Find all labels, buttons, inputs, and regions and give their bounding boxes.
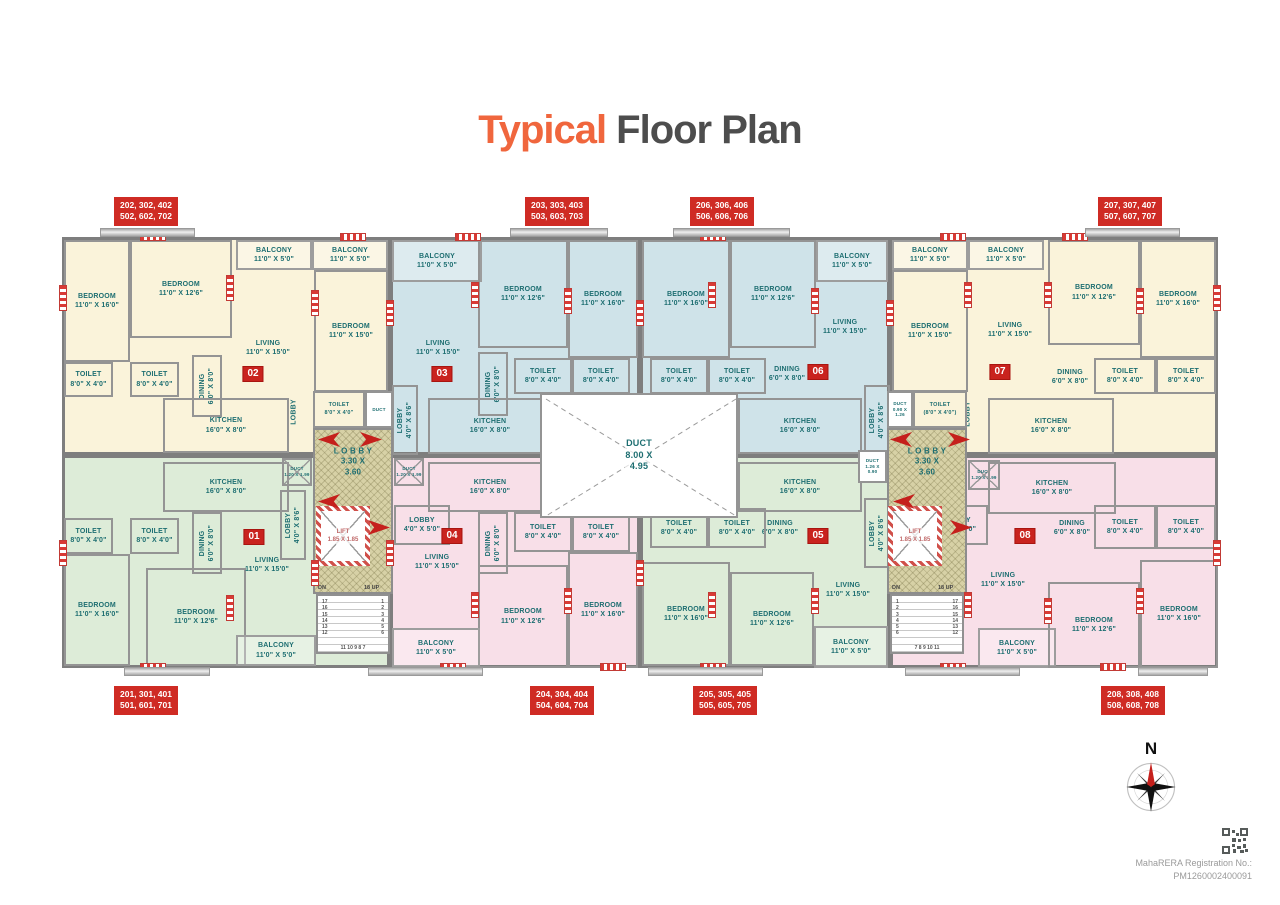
window-marker (564, 588, 572, 614)
unit-number-label: 201, 301, 401 501, 601, 701 (114, 686, 178, 715)
window-marker (886, 300, 894, 326)
center-duct-label: DUCT 8.00 X 4.95 (625, 438, 652, 473)
staircase: 1 2 3 4 5 617 16 15 14 13 127 8 9 10 11 (890, 594, 964, 654)
unit-number-label: 203, 303, 403 503, 603, 703 (525, 197, 589, 226)
room-label: BEDROOM 11'0" X 16'0" (581, 290, 625, 308)
balcony-railing (1085, 228, 1180, 237)
room-kitchen: KITCHEN 16'0" X 8'0" (163, 462, 289, 512)
room-label: TOILET 8'0" X 4'0" (719, 519, 755, 537)
unit-badge-08: 08 (1014, 528, 1035, 544)
window-marker (964, 592, 972, 618)
room-bedroom: BEDROOM 11'0" X 12'6" (478, 565, 568, 668)
window-marker (386, 540, 394, 566)
room-balcony: BALCONY 11'0" X 5'0" (816, 240, 888, 282)
room-label: DINING 6'0" X 8'0" (484, 525, 502, 561)
room-label: BEDROOM 11'0" X 16'0" (75, 292, 119, 310)
room-label-living: LIVING 11'0" X 15'0" (981, 571, 1025, 589)
unit-badge-02: 02 (242, 366, 263, 382)
room-balcony: BALCONY 11'0" X 5'0" (392, 240, 482, 282)
window-marker (708, 282, 716, 308)
window-marker (964, 282, 972, 308)
window-marker (1100, 663, 1126, 671)
balcony-railing (1138, 667, 1208, 676)
window-marker (1044, 598, 1052, 624)
core-duct: DUCT 0.90 X 1.26 (887, 391, 913, 428)
room-toilet: TOILET 8'0" X 4'0" (130, 362, 179, 397)
window-marker (311, 560, 319, 586)
room-label: BEDROOM 11'0" X 12'6" (174, 608, 218, 626)
unit-badge-03: 03 (431, 366, 452, 382)
window-marker (564, 288, 572, 314)
unit-badge-01: 01 (243, 529, 264, 545)
window-marker (811, 588, 819, 614)
room-label-living: LIVING 11'0" X 15'0" (246, 339, 290, 357)
window-marker (1044, 282, 1052, 308)
room-bedroom: BEDROOM 11'0" X 16'0" (642, 562, 730, 666)
room-label: BALCONY 11'0" X 5'0" (417, 252, 457, 270)
center-duct: DUCT 8.00 X 4.95 (540, 393, 738, 518)
room-label: KITCHEN 16'0" X 8'0" (470, 478, 510, 496)
room-label: BALCONY 11'0" X 5'0" (254, 246, 294, 264)
room-label-living: LIVING 11'0" X 15'0" (826, 581, 870, 599)
stair-numbers-left: 1 2 3 4 5 6 (896, 599, 899, 637)
room-toilet: TOILET 8'0" X 4'0" (650, 358, 708, 394)
room-lobby: LOBBY 4'0" X 8'6" (392, 385, 418, 455)
room-label-dining: DINING 6'0" X 8'0" (762, 519, 798, 537)
room-bedroom: BEDROOM 11'0" X 12'6" (1048, 240, 1140, 345)
window-marker (811, 288, 819, 314)
room-label: TOILET 8'0" X 4'0" (583, 523, 619, 541)
room-duct: DUCT 1.20 X 1.99 (282, 458, 312, 486)
unit-number-label: 202, 302, 402 502, 602, 702 (114, 197, 178, 226)
room-label: KITCHEN 16'0" X 8'0" (206, 416, 246, 434)
room-balcony: BALCONY 11'0" X 5'0" (892, 240, 968, 270)
window-marker (471, 592, 479, 618)
window-marker (59, 540, 67, 566)
core-toilet: TOILET (8'0" X 4'0") (913, 391, 967, 428)
room-label: TOILET (8'0" X 4'0") (923, 402, 956, 416)
room-label: BEDROOM 11'0" X 16'0" (664, 605, 708, 623)
room-toilet: TOILET 8'0" X 4'0" (572, 358, 630, 394)
room-label: KITCHEN 16'0" X 8'0" (470, 417, 510, 435)
room-bedroom: BEDROOM 11'0" X 12'6" (478, 240, 568, 348)
room-label: TOILET 8'0" X 4'0" (136, 370, 172, 388)
stairs-up-label: 18 UP (938, 585, 953, 591)
unit-number-label: 204, 304, 404 504, 604, 704 (530, 686, 594, 715)
room-label: BEDROOM 11'0" X 12'6" (1072, 283, 1116, 301)
room-label-lobby: LOBBY (289, 399, 298, 425)
room-label: TOILET 8'0" X 4'0" (1168, 367, 1204, 385)
lift: LIFT 1.85 X 1.85 (888, 506, 942, 566)
lift: LIFT 1.85 X 1.85 (316, 506, 370, 566)
unit-badge-07: 07 (989, 364, 1010, 380)
room-label: BEDROOM 11'0" X 12'6" (501, 285, 545, 303)
room-label: TOILET 8'0" X 4'0" (661, 519, 697, 537)
room-bedroom: BEDROOM 11'0" X 16'0" (568, 240, 638, 358)
window-marker (226, 275, 234, 301)
room-toilet: TOILET 8'0" X 4'0" (64, 362, 113, 397)
lift-label: LIFT 1.85 X 1.85 (326, 528, 361, 545)
room-toilet: TOILET 8'0" X 4'0" (1156, 505, 1216, 549)
window-marker (940, 233, 966, 241)
window-marker (1213, 285, 1221, 311)
room-toilet: TOILET 8'0" X 4'0" (708, 358, 766, 394)
room-kitchen: KITCHEN 16'0" X 8'0" (163, 398, 289, 453)
room-label: TOILET 8'0" X 4'0" (136, 527, 172, 545)
room-toilet: TOILET 8'0" X 4'0" (1156, 358, 1216, 394)
compass-rose: N (1122, 740, 1180, 820)
room-label-living: LIVING 11'0" X 15'0" (823, 318, 867, 336)
room-toilet: TOILET 8'0" X 4'0" (130, 518, 179, 554)
window-marker (636, 560, 644, 586)
core-duct: DUCT (365, 391, 393, 428)
window-marker (1136, 288, 1144, 314)
room-label-dining: DINING 6'0" X 8'0" (1054, 519, 1090, 537)
room-label-dining: DINING 6'0" X 8'0" (1052, 368, 1088, 386)
duct-label: DUCT (372, 407, 385, 413)
room-balcony: BALCONY 11'0" X 5'0" (236, 635, 316, 666)
balcony-railing (905, 667, 1020, 676)
window-marker (600, 663, 626, 671)
room-bedroom: BEDROOM 11'0" X 16'0" (1140, 240, 1216, 358)
unit-badge-06: 06 (807, 364, 828, 380)
room-balcony: BALCONY 11'0" X 5'0" (236, 240, 312, 270)
room-label: TOILET 8'0" X 4'0" (70, 527, 106, 545)
window-marker (471, 282, 479, 308)
window-marker (455, 233, 481, 241)
window-marker (1136, 588, 1144, 614)
room-label: BEDROOM 11'0" X 16'0" (664, 290, 708, 308)
core-toilet: TOILET 8'0" X 4'0" (313, 391, 365, 428)
unit-number-label: 207, 307, 407 507, 607, 707 (1098, 197, 1162, 226)
room-label: TOILET 8'0" X 4'0" (1168, 518, 1204, 536)
unit-number-label: 208, 308, 408 508, 608, 708 (1101, 686, 1165, 715)
window-marker (636, 300, 644, 326)
room-kitchen: KITCHEN 16'0" X 8'0" (428, 398, 552, 454)
room-toilet: TOILET 8'0" X 4'0" (64, 518, 113, 554)
room-bedroom: BEDROOM 11'0" X 16'0" (568, 552, 638, 668)
stair-numbers-bottom: 7 8 9 10 11 (892, 645, 962, 651)
room-label: TOILET 8'0" X 4'0" (525, 367, 561, 385)
room-label: BEDROOM 11'0" X 15'0" (908, 322, 952, 340)
stair-numbers-right: 1 2 3 4 5 6 (381, 599, 384, 637)
room-balcony: BALCONY 11'0" X 5'0" (978, 628, 1056, 668)
room-label: TOILET 8'0" X 4'0" (70, 370, 106, 388)
unit-number-label: 205, 305, 405 505, 605, 705 (693, 686, 757, 715)
room-balcony: BALCONY 11'0" X 5'0" (814, 626, 888, 668)
room-label: BEDROOM 11'0" X 12'6" (750, 610, 794, 628)
room-label: DINING 6'0" X 8'0" (198, 525, 216, 561)
room-duct: DUCT 1.20 X 1.99 (394, 458, 424, 486)
room-label: TOILET 8'0" X 4'0" (583, 367, 619, 385)
room-label: KITCHEN 16'0" X 8'0" (780, 478, 820, 496)
room-toilet: TOILET 8'0" X 4'0" (1094, 505, 1156, 549)
stairs-dn-label: DN (318, 585, 326, 591)
rera-line2: PM1260002400091 (1135, 870, 1252, 883)
lobby-label: L O B B Y 3.30 X 3.60 (908, 446, 946, 477)
room-balcony: BALCONY 11'0" X 5'0" (312, 240, 388, 270)
room-label: TOILET 8'0" X 4'0" (719, 367, 755, 385)
room-label: BEDROOM 11'0" X 15'0" (329, 322, 373, 340)
unit-badge-04: 04 (441, 528, 462, 544)
room-label: BEDROOM 11'0" X 12'6" (159, 280, 203, 298)
room-dining: DINING 6'0" X 8'0" (192, 512, 222, 574)
room-kitchen: KITCHEN 16'0" X 8'0" (738, 398, 862, 454)
stairs-dn-label: DN (892, 585, 900, 591)
room-kitchen: KITCHEN 16'0" X 8'0" (988, 398, 1114, 454)
room-bedroom: BEDROOM 11'0" X 12'6" (730, 572, 814, 666)
unit-number-label: 206, 306, 406 506, 606, 706 (690, 197, 754, 226)
stair-numbers-left: 17 16 15 14 13 12 (322, 599, 328, 637)
room-bedroom: BEDROOM 11'0" X 16'0" (64, 554, 130, 666)
unit-badge-05: 05 (807, 528, 828, 544)
room-label: TOILET 8'0" X 4'0" (1107, 367, 1143, 385)
balcony-railing (100, 228, 195, 237)
room-bedroom: BEDROOM 11'0" X 12'6" (1048, 582, 1140, 668)
room-label: LOBBY 4'0" X 8'6" (868, 515, 886, 551)
room-label: BALCONY 11'0" X 5'0" (330, 246, 370, 264)
compass-north-label: N (1122, 740, 1180, 757)
balcony-railing (368, 667, 483, 676)
room-label-living: LIVING 11'0" X 15'0" (988, 321, 1032, 339)
window-marker (226, 595, 234, 621)
room-label: BEDROOM 11'0" X 12'6" (501, 607, 545, 625)
rera-line1: MahaRERA Registration No.: (1135, 857, 1252, 870)
room-label: TOILET 8'0" X 4'0" (1107, 518, 1143, 536)
room-label: DUCT 1.20 X 1.99 (396, 466, 421, 478)
room-label: KITCHEN 16'0" X 8'0" (1031, 417, 1071, 435)
room-bedroom: BEDROOM 11'0" X 12'6" (130, 240, 232, 338)
room-lobby: LOBBY 4'0" X 8'6" (280, 490, 306, 560)
room-label-living: LIVING 11'0" X 15'0" (416, 339, 460, 357)
room-label: BEDROOM 11'0" X 16'0" (1157, 605, 1201, 623)
rera-registration: MahaRERA Registration No.: PM12600024000… (1135, 857, 1252, 883)
balcony-railing (648, 667, 763, 676)
room-balcony: BALCONY 11'0" X 5'0" (968, 240, 1044, 270)
room-bedroom: BEDROOM 11'0" X 16'0" (64, 240, 130, 362)
room-toilet: TOILET 8'0" X 4'0" (514, 358, 572, 394)
window-marker (386, 300, 394, 326)
room-label: BEDROOM 11'0" X 12'6" (751, 285, 795, 303)
side-duct: DUCT 1.26 X 0.90 (858, 450, 887, 483)
stair-numbers-bottom: 11 10 9 8 7 (318, 645, 388, 651)
room-kitchen: KITCHEN 16'0" X 8'0" (738, 462, 862, 512)
balcony-railing (124, 667, 210, 676)
room-label: BEDROOM 11'0" X 16'0" (1156, 290, 1200, 308)
room-bedroom: BEDROOM 11'0" X 16'0" (1140, 560, 1218, 668)
lobby-label: L O B B Y 3.30 X 3.60 (334, 446, 372, 477)
duct-label: DUCT 0.90 X 1.26 (889, 401, 911, 419)
window-marker (340, 233, 366, 241)
room-label: LOBBY 4'0" X 8'6" (396, 402, 414, 438)
room-label: KITCHEN 16'0" X 8'0" (1032, 479, 1072, 497)
room-label: DUCT 1.20 X 1.99 (284, 466, 309, 478)
stairs-up-label: 18 UP (364, 585, 379, 591)
window-marker (1213, 540, 1221, 566)
room-label: BALCONY 11'0" X 5'0" (986, 246, 1026, 264)
room-label: TOILET 8'0" X 4'0" (525, 523, 561, 541)
room-label-living: LIVING 11'0" X 15'0" (415, 553, 459, 571)
room-label: TOILET 8'0" X 4'0" (661, 367, 697, 385)
room-label: LOBBY 4'0" X 8'6" (868, 402, 886, 438)
lift-label: LIFT 1.85 X 1.85 (898, 528, 933, 545)
room-label: BALCONY 11'0" X 5'0" (256, 641, 296, 659)
compass-icon (1123, 759, 1179, 815)
room-label: DINING 6'0" X 8'0" (484, 366, 502, 402)
room-label: KITCHEN 16'0" X 8'0" (780, 417, 820, 435)
room-label: BEDROOM 11'0" X 16'0" (75, 601, 119, 619)
room-toilet: TOILET 8'0" X 4'0" (1094, 358, 1156, 394)
room-label: BALCONY 11'0" X 5'0" (832, 252, 872, 270)
window-marker (311, 290, 319, 316)
room-label: BALCONY 11'0" X 5'0" (831, 638, 871, 656)
floor-plan: BEDROOM 11'0" X 16'0"BEDROOM 11'0" X 12'… (0, 0, 1280, 905)
stair-numbers-right: 17 16 15 14 13 12 (952, 599, 958, 637)
room-label: BALCONY 11'0" X 5'0" (416, 639, 456, 657)
room-bedroom: BEDROOM 11'0" X 12'6" (730, 240, 816, 348)
room-label: KITCHEN 16'0" X 8'0" (206, 478, 246, 496)
staircase: 17 16 15 14 13 121 2 3 4 5 611 10 9 8 7 (316, 594, 390, 654)
room-bedroom: BEDROOM 11'0" X 15'0" (892, 270, 968, 392)
room-label: LOBBY 4'0" X 5'0" (404, 516, 440, 534)
balcony-railing (510, 228, 608, 237)
qr-code (1222, 828, 1248, 854)
window-marker (708, 592, 716, 618)
room-label-dining: DINING 6'0" X 8'0" (769, 365, 805, 383)
balcony-railing (673, 228, 790, 237)
room-label: BALCONY 11'0" X 5'0" (997, 639, 1037, 657)
duct-label: DUCT 1.26 X 0.90 (860, 458, 885, 476)
window-marker (59, 285, 67, 311)
room-label: BALCONY 11'0" X 5'0" (910, 246, 950, 264)
room-label: TOILET 8'0" X 4'0" (325, 402, 354, 416)
room-label: BEDROOM 11'0" X 12'6" (1072, 616, 1116, 634)
room-bedroom: BEDROOM 11'0" X 15'0" (314, 270, 388, 392)
room-bedroom: BEDROOM 11'0" X 16'0" (642, 240, 730, 358)
room-balcony: BALCONY 11'0" X 5'0" (392, 628, 480, 668)
room-label: BEDROOM 11'0" X 16'0" (581, 601, 625, 619)
room-label: LOBBY 4'0" X 8'6" (284, 507, 302, 543)
